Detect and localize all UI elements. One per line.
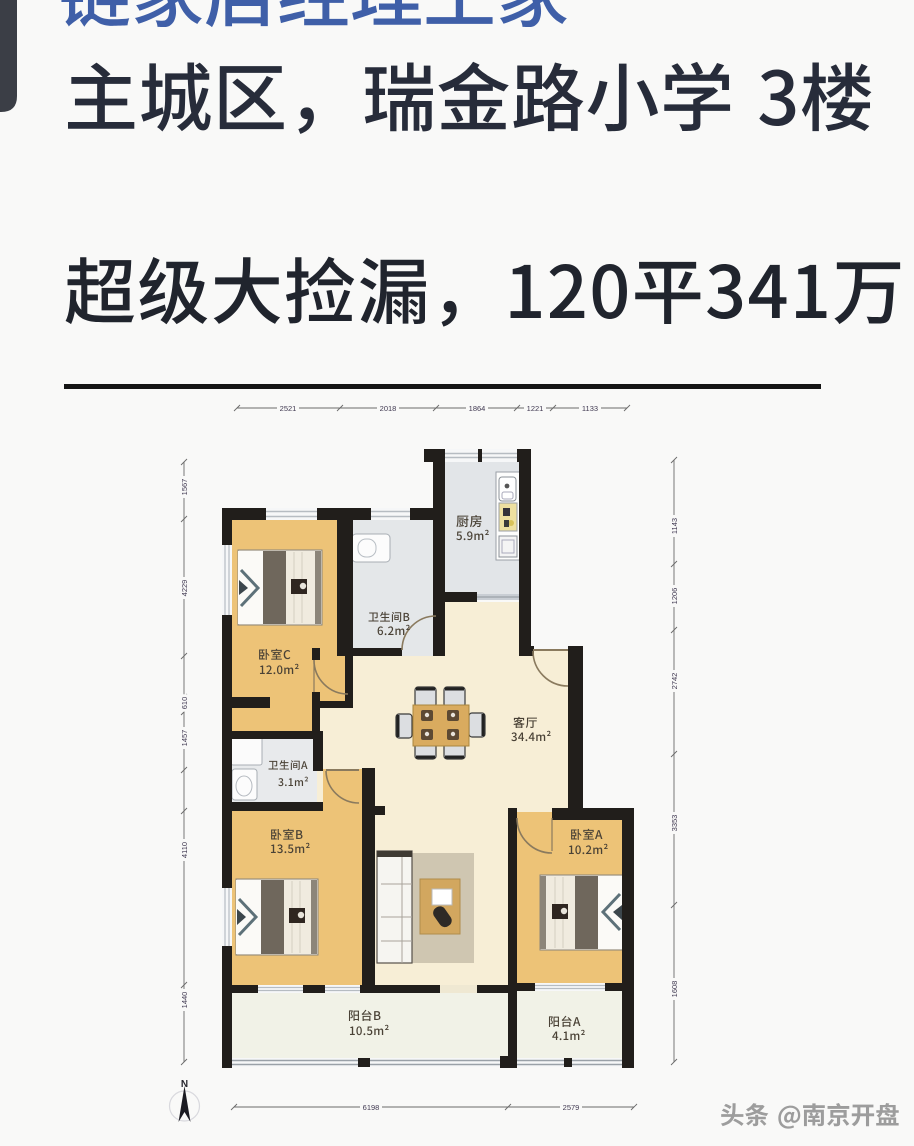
svg-text:1206: 1206 [670,588,679,605]
svg-text:610: 610 [180,697,189,710]
svg-text:4110: 4110 [180,842,189,858]
svg-text:1221: 1221 [527,404,544,413]
svg-text:2579: 2579 [563,1103,580,1112]
svg-text:1440: 1440 [180,992,189,1009]
svg-text:6198: 6198 [363,1103,380,1112]
svg-text:4229: 4229 [180,580,189,597]
svg-text:3353: 3353 [670,815,679,832]
svg-text:1133: 1133 [582,404,598,413]
svg-text:1143: 1143 [670,518,679,534]
svg-text:1608: 1608 [670,981,679,998]
svg-text:1864: 1864 [469,404,486,413]
svg-text:1567: 1567 [180,479,189,496]
svg-text:2521: 2521 [280,404,297,413]
svg-text:N: N [181,1079,188,1090]
svg-text:2018: 2018 [380,404,397,413]
svg-text:1457: 1457 [180,730,189,747]
svg-text:2742: 2742 [670,673,679,690]
